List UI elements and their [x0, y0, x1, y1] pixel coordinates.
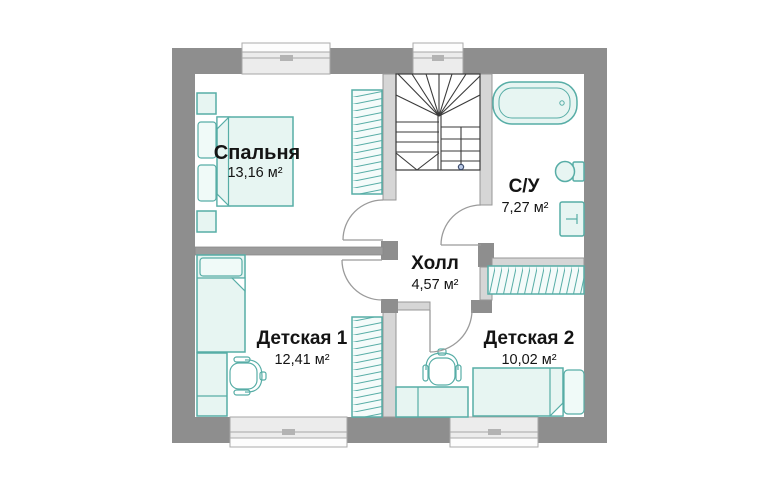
room-label-bedroom: Спальня [214, 142, 300, 164]
pillow-icon [564, 370, 584, 414]
room-label-kids2: Детская 2 [484, 328, 575, 349]
window-kids1 [230, 417, 347, 447]
wall-junction [381, 299, 398, 313]
wall-top [172, 48, 607, 74]
window-staircase [413, 43, 463, 74]
pillow-icon [198, 165, 216, 201]
partition-bathroom-kids2 [492, 258, 584, 266]
partition-bedroom-kids1 [195, 247, 383, 255]
single-bed-icon [473, 368, 584, 416]
partition-hall-right-upper [480, 74, 492, 205]
desk-icon [197, 353, 227, 416]
door-kids1 [342, 260, 382, 300]
floor-plan-canvas: Спальня 13,16 м² С/У 7,27 м² Холл 4,57 м… [0, 0, 766, 502]
wall-junction [381, 241, 398, 260]
wardrobe-icon [488, 266, 584, 294]
room-label-kids1: Детская 1 [257, 328, 348, 349]
room-label-bathroom: С/У [509, 176, 540, 197]
wardrobe-icon [352, 317, 382, 417]
wall-right [584, 48, 607, 443]
room-area-bedroom: 13,16 м² [227, 165, 282, 181]
desk-icon [396, 387, 468, 417]
partition-hall-left-upper [383, 74, 396, 200]
partition-hall-left-lower [383, 300, 396, 417]
window-kids2 [450, 417, 538, 447]
stair-direction-dot [458, 164, 463, 169]
room-area-hall: 4,57 м² [411, 277, 458, 293]
window-bedroom [242, 43, 330, 74]
pillow-icon [200, 258, 242, 276]
door-kids2 [430, 310, 472, 352]
staircase-icon [396, 74, 480, 170]
partition-hall-kids2 [396, 302, 430, 310]
bathtub-icon [493, 82, 577, 124]
wardrobe-icon [352, 90, 382, 194]
chair-icon [230, 357, 266, 395]
wall-junction [471, 300, 492, 313]
nightstand-icon [197, 211, 216, 232]
door-bathroom [441, 205, 481, 245]
room-area-bathroom: 7,27 м² [501, 200, 548, 216]
wall-left [172, 48, 195, 443]
floor-plan-svg: Спальня 13,16 м² С/У 7,27 м² Холл 4,57 м… [0, 0, 766, 502]
room-area-kids1: 12,41 м² [274, 352, 329, 368]
room-label-hall: Холл [411, 253, 459, 274]
chair-icon [423, 349, 461, 385]
single-bed-icon [197, 255, 245, 352]
sink-cabinet-icon [560, 202, 584, 236]
door-bedroom [343, 200, 383, 240]
room-area-kids2: 10,02 м² [501, 352, 556, 368]
toilet-icon [556, 162, 585, 182]
nightstand-icon [197, 93, 216, 114]
